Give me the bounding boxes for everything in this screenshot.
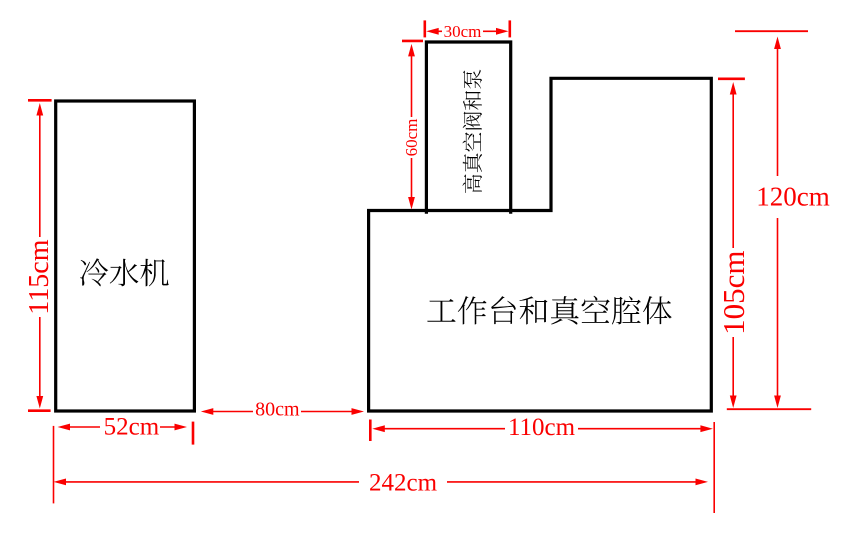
svg-text:80cm: 80cm bbox=[255, 399, 300, 421]
svg-text:115cm: 115cm bbox=[24, 239, 55, 314]
svg-text:242cm: 242cm bbox=[369, 470, 438, 497]
svg-text:110cm: 110cm bbox=[508, 414, 576, 441]
svg-text:105cm: 105cm bbox=[716, 251, 751, 335]
svg-text:52cm: 52cm bbox=[104, 414, 160, 441]
svg-text:60cm: 60cm bbox=[402, 119, 421, 157]
svg-text:120cm: 120cm bbox=[756, 181, 830, 211]
svg-text:30cm: 30cm bbox=[444, 22, 482, 41]
